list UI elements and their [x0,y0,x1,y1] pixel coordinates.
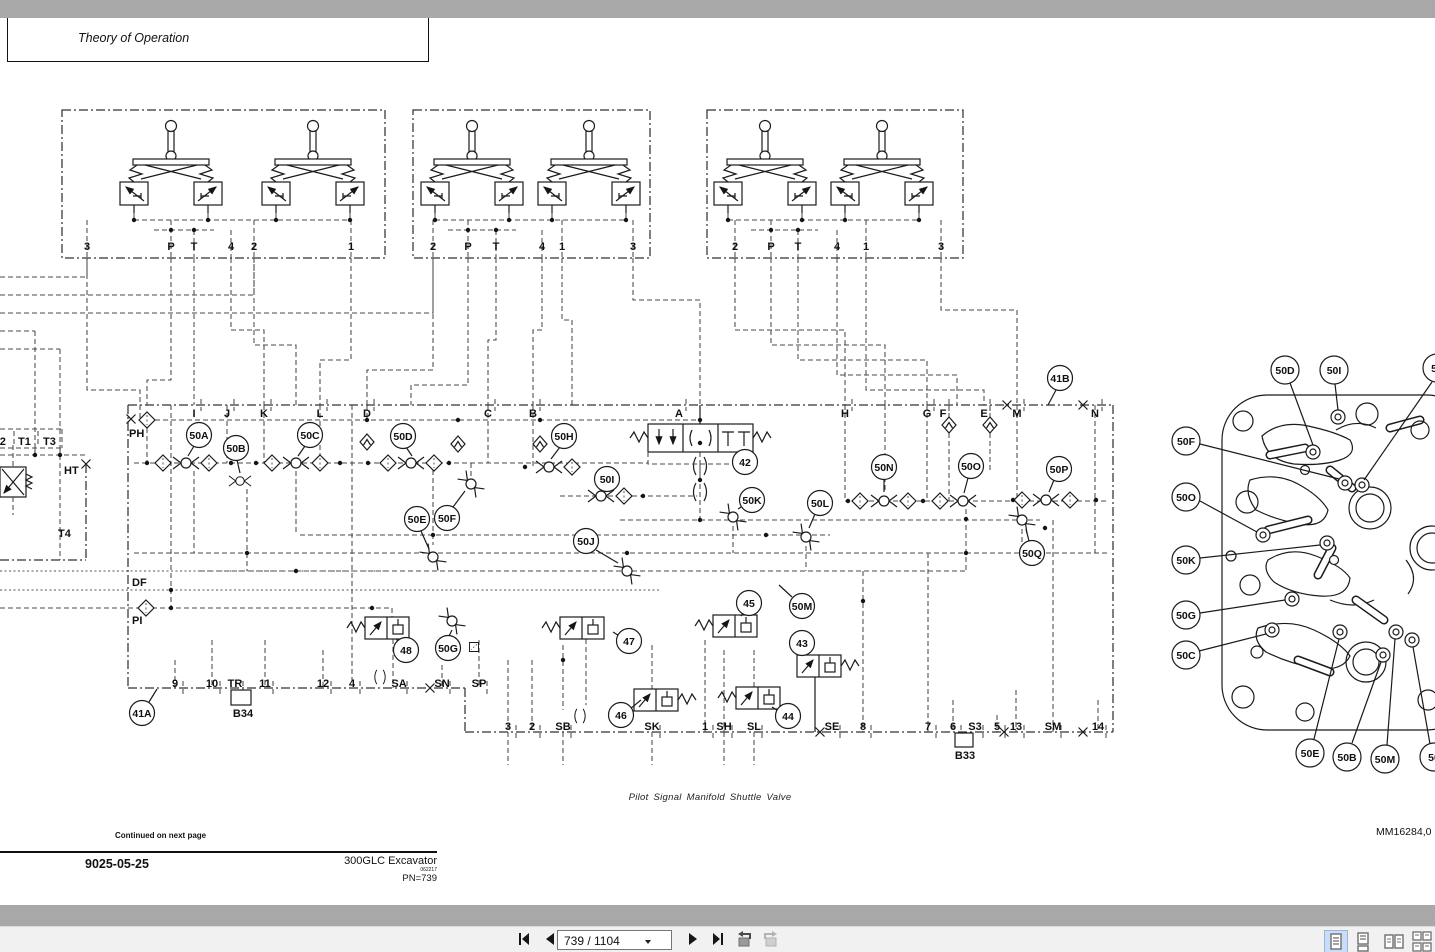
callout-50N: 50N [872,455,897,493]
two-page-continuous-view-icon [1411,931,1433,952]
callout-50L: 50L [808,491,833,529]
two-page-view-button[interactable] [1383,931,1405,952]
svg-text:50C: 50C [300,430,320,442]
callout-50O: 50O [959,454,984,494]
prev-page-icon [542,931,558,947]
manifold-plate-drawing: 50D 50I 50 50F 50O 50K 50G 50C 50E 50B 5… [1172,354,1435,773]
svg-text:50H: 50H [554,431,573,443]
port-label: 2 [251,241,257,253]
port-label: DF [132,577,147,589]
callout-50I: 50I [595,467,620,492]
port-label: SN [434,678,449,690]
port-label: 3 [505,721,511,733]
callout-50A: 50A [187,423,212,457]
svg-text:50M: 50M [792,601,813,613]
port-label: 6 [950,721,956,733]
port-label: 12 [317,678,329,690]
port-label: SA [391,678,406,690]
svg-text:50B: 50B [226,443,246,455]
port-label: D [363,408,371,420]
pilot-line-routing [0,258,1017,454]
port-label: J [224,408,230,420]
solenoid-valve-44 [718,687,780,709]
svg-text:43: 43 [796,638,808,650]
callout-50B: 50B [224,436,249,474]
port-label: S3 [968,721,981,733]
single-page-view-button[interactable] [1325,931,1347,952]
svg-text:42: 42 [739,457,751,469]
solenoid-valve-47 [542,617,604,639]
port-label: T [191,241,198,253]
hydraulic-schematic: .k{stroke:#1b1b1b;fill:none;stroke-width… [0,0,1435,952]
svg-text:47: 47 [623,636,635,648]
callout-41A: 41A [130,689,158,726]
port-label: 2 [732,241,738,253]
continuous-view-icon [1352,931,1374,952]
solenoid-valve-48 [347,617,409,639]
callout-47: 47 [613,629,642,654]
port-label: 5 [994,721,1000,733]
port-label: 4 [228,241,235,253]
viewer-bottom-band [0,905,1435,926]
port-label: T3 [43,436,56,448]
port-label: 2 [430,241,436,253]
port-label: 3 [630,241,636,253]
svg-text:50: 50 [1431,363,1435,375]
port-label: K [260,408,268,420]
svg-text:41A: 41A [132,708,152,720]
port-label: SP [472,678,487,690]
port-label: A [675,408,683,420]
pdf-viewer-window: .k{stroke:#1b1b1b;fill:none;stroke-width… [0,0,1435,952]
port-label: SE [825,721,840,733]
port-label: C [484,408,492,420]
connector-b34: B34 [231,690,254,720]
port-label: T [795,241,802,253]
port-label: T [493,241,500,253]
port-label: SB [555,721,570,733]
svg-text:46: 46 [615,710,627,722]
callout-50P: 50P [1047,457,1072,493]
page-number-value: 739 / 1104 [564,934,620,948]
svg-text:50G: 50G [438,643,458,655]
callout-50M: 50M [779,585,815,619]
port-label: PH [129,428,144,440]
port-label: 1 [348,241,354,253]
solenoid-valve-46 [634,689,696,711]
next-page-button[interactable] [683,930,703,950]
footer-rule [0,851,437,853]
connector-b33: B33 [955,733,975,762]
port-label: 7 [925,721,931,733]
port-label: 3 [938,241,944,253]
svg-text:50: 50 [1428,752,1435,764]
two-page-view-icon [1383,931,1405,952]
port-label: 8 [860,721,866,733]
svg-text:B34: B34 [233,708,254,720]
callout-50C: 50C [298,423,323,457]
svg-text:50M: 50M [1375,754,1396,766]
svg-text:50I: 50I [600,474,615,486]
svg-text:50E: 50E [408,514,427,526]
port-label: M [1012,408,1021,420]
footer-model: 300GLC Excavator [237,855,437,867]
solenoid-valve-43 [797,655,859,677]
svg-text:45: 45 [743,598,755,610]
svg-text:50J: 50J [577,536,595,548]
port-label: T2 [0,436,6,448]
port-label: 11 [259,678,271,690]
callout-50H: 50H [551,424,577,460]
manifold-top-port-labels: I J K L D C B A H G F E M N [192,408,1099,420]
page-title: Theory of Operation [78,31,189,45]
combobox-caret-icon [645,940,651,944]
port-label: SK [644,721,659,733]
port-label: B [529,408,537,420]
svg-text:50A: 50A [189,430,209,442]
port-label: 1 [702,721,708,733]
first-page-icon [516,931,532,947]
viewer-toolbar: 739 / 1104 [0,926,1435,952]
continuous-view-button[interactable] [1352,931,1374,952]
port-label: 13 [1010,721,1022,733]
svg-text:50D: 50D [1275,365,1295,377]
continued-note: Continued on next page [115,831,206,840]
solenoid-valve-45 [695,615,757,637]
svg-text:44: 44 [782,711,794,723]
callout-50J: 50J [574,529,619,564]
figure-caption: Pilot Signal Manifold Shuttle Valve [560,792,860,803]
port-label: 3 [84,241,90,253]
svg-text:50P: 50P [1050,464,1069,476]
port-label: P [167,241,174,253]
svg-text:50K: 50K [742,495,762,507]
port-label: 4 [349,678,356,690]
svg-text:B33: B33 [955,750,975,762]
svg-text:50N: 50N [874,462,893,474]
callout-48: 48 [394,638,419,663]
svg-text:50B: 50B [1337,752,1357,764]
callout-50F: 50F [435,491,466,531]
port-label: F [940,408,947,420]
port-label: 2 [529,721,535,733]
manifold-outline [128,405,1113,732]
callout-43: 43 [790,631,815,656]
footer-model-block: 300GLC Excavator 062217 PN=739 [237,855,437,884]
last-page-button[interactable] [708,930,728,950]
port-label: H [841,408,849,420]
callout-50D: 50D [391,424,416,457]
tank-drain-circuit: T2 T1 T3 HT T4 [0,429,91,560]
viewer-top-bar [0,0,1435,18]
port-label: 4 [539,241,546,253]
port-label: 1 [863,241,869,253]
svg-text:50O: 50O [961,461,981,473]
svg-text:41B: 41B [1050,373,1070,385]
svg-text:50G: 50G [1176,610,1196,622]
port-label: L [317,408,324,420]
port-label: SM [1045,721,1062,733]
port-label: T1 [18,436,31,448]
footer-section-code: 9025-05-25 [85,857,149,871]
figure-id: MM16284,0 [1376,826,1431,838]
svg-text:50D: 50D [393,431,413,443]
port-label: 1 [559,241,565,253]
callout-45: 45 [737,591,762,617]
port-label: 14 [1092,721,1105,733]
port-label: P [767,241,774,253]
next-view-button[interactable] [760,930,782,950]
svg-text:48: 48 [400,645,412,657]
svg-text:50K: 50K [1176,555,1196,567]
last-page-icon [710,931,726,947]
port-label: G [923,408,932,420]
port-label: P [464,241,471,253]
svg-text:50C: 50C [1176,650,1196,662]
callout-41B: 41B [1048,366,1073,406]
svg-text:50Q: 50Q [1022,548,1042,560]
callout-50K: 50K [738,488,765,513]
callout-50E: 50E [405,507,430,550]
port-label: SH [716,721,731,733]
port-label: 10 [206,678,218,690]
next-page-icon [685,931,701,947]
manifold-bottom-port-labels-lower: 3 2 SB SK 1 SH SL SE 8 7 6 S3 5 13 SM 14 [505,721,1105,733]
first-page-button[interactable] [514,930,534,950]
port-label: T4 [58,528,72,540]
previous-view-icon [734,930,754,948]
port-label: HT [64,465,79,477]
port-label: 4 [834,241,841,253]
port-label: 9 [172,678,178,690]
two-page-continuous-view-button[interactable] [1411,931,1433,952]
port-label: PI [132,615,142,627]
svg-text:50L: 50L [811,498,830,510]
port-label: E [980,408,987,420]
port-label: I [192,408,195,420]
single-page-view-icon [1325,931,1347,952]
port-label: N [1091,408,1099,420]
svg-text:50F: 50F [1177,436,1196,448]
port-label: TR [228,678,243,690]
callout-46: 46 [609,700,642,728]
footer-page-number: PN=739 [237,873,437,884]
port-label: SL [747,721,761,733]
callout-42: 42 [733,450,758,475]
page-number-combobox[interactable]: 739 / 1104 [557,930,672,950]
svg-text:50F: 50F [438,513,457,525]
svg-text:50E: 50E [1301,748,1320,760]
header-box: Theory of Operation [7,18,429,62]
junction-dots [145,418,1098,662]
previous-view-button[interactable] [733,930,755,950]
next-view-icon [761,930,781,948]
callout-50G: 50G [436,630,461,661]
svg-text:50I: 50I [1327,365,1342,377]
svg-text:50O: 50O [1176,492,1196,504]
callout-50Q: 50Q [1020,529,1045,566]
